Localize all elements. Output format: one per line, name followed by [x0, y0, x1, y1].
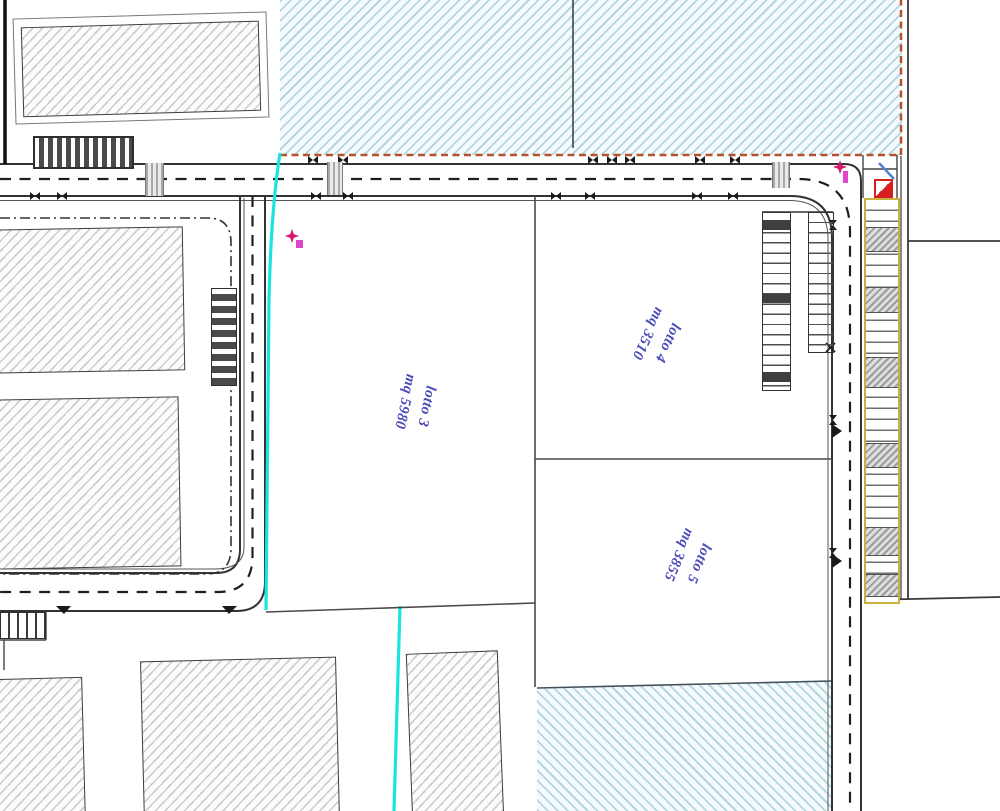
access-symbol-red-square: [874, 179, 893, 198]
loop-road-inner-edge: [0, 196, 240, 573]
parking-strip-east: [864, 198, 900, 604]
parking-comb-southwest: [0, 612, 46, 639]
west-parcel-boundary: [0, 218, 231, 574]
parking-comb-west: [211, 288, 237, 386]
parking-ladder-1: [762, 212, 791, 391]
reserved-stall: [866, 443, 898, 468]
crossing-band-3: [772, 162, 790, 188]
parking-ladder-rung-dark: [763, 294, 790, 303]
parking-ladder-2: [808, 212, 834, 353]
reserved-stall: [866, 287, 898, 313]
plan-linework: [0, 0, 1000, 811]
reserved-stall: [866, 227, 898, 252]
survey-marker-flag: [843, 171, 848, 183]
zone-boundary-orange: [280, 0, 901, 155]
parking-comb-north: [33, 136, 134, 169]
reserved-stall: [866, 574, 898, 597]
loop-road-outer-edge: [0, 196, 265, 611]
utility-line-cyan-1: [266, 153, 280, 610]
blue-entry-mark: [879, 163, 894, 179]
reserved-stall: [866, 527, 898, 556]
loop-road-centerline: [0, 196, 253, 592]
reserved-stall: [866, 357, 898, 388]
parking-ladder-rung-dark: [763, 372, 790, 382]
site-plan-canvas: lotto 3 mq 5980 lotto 4 mq 3510 lotto 5 …: [0, 0, 1000, 811]
road-centerline: [0, 179, 850, 811]
survey-marker-flag: [296, 240, 303, 248]
road-outer-edge: [0, 164, 861, 811]
utility-line-cyan-2: [394, 606, 400, 811]
parking-ladder-rung-dark: [763, 220, 790, 230]
loop-road-inner-curb: [0, 198, 244, 569]
south-hatch-top-edge: [537, 681, 831, 688]
crossing-band-1: [145, 163, 164, 196]
crossing-band-2: [327, 162, 343, 195]
